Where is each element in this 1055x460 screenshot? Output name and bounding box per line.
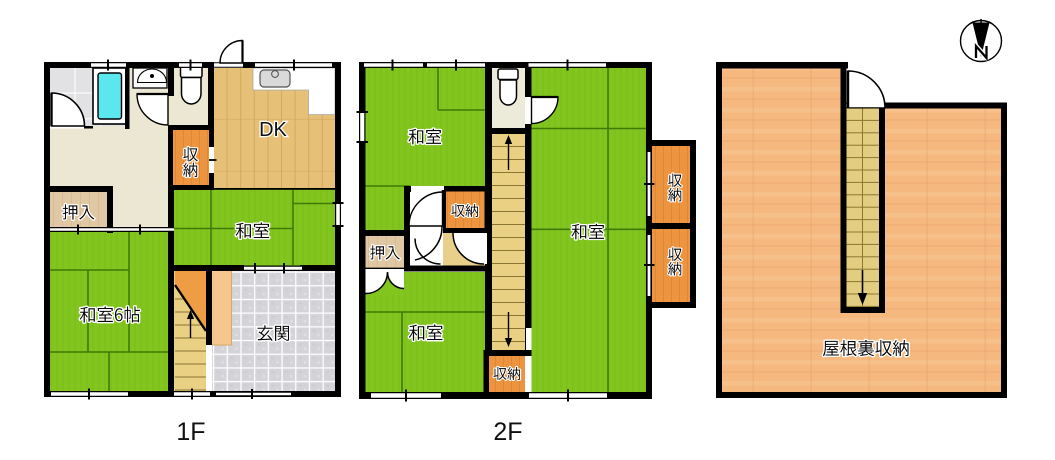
- svg-text:2F: 2F: [493, 418, 522, 446]
- svg-text:1F: 1F: [176, 418, 205, 446]
- svg-text:DK: DK: [259, 119, 287, 141]
